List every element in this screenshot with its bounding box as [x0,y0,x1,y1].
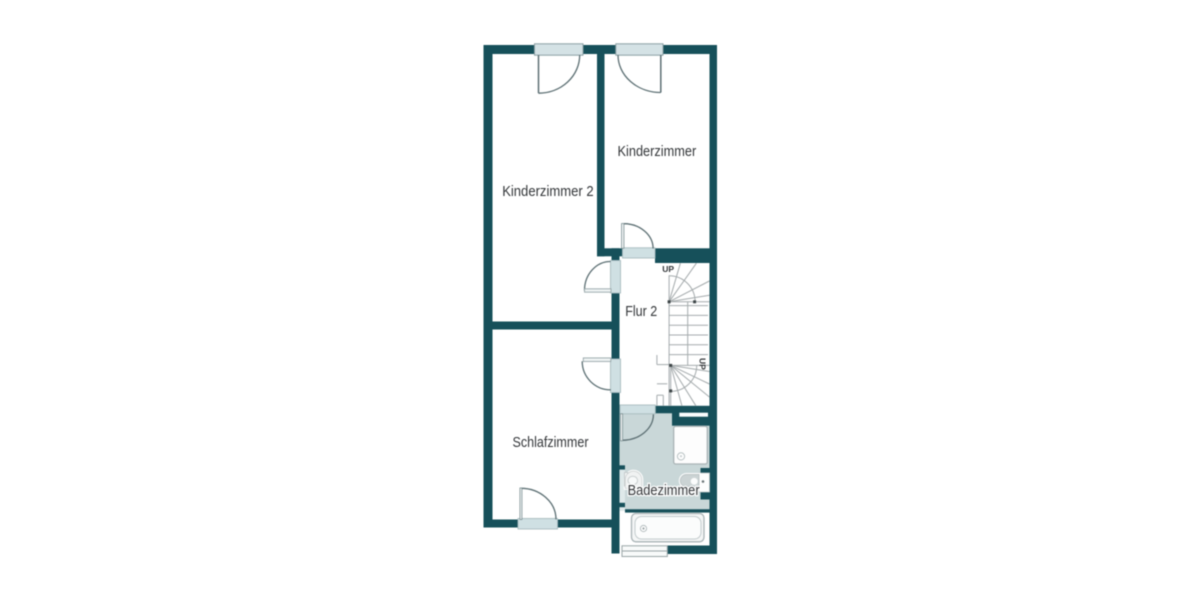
svg-text:Kinderzimmer 2: Kinderzimmer 2 [502,183,593,200]
svg-text:Badezimmer: Badezimmer [628,482,700,499]
svg-text:UP: UP [662,264,674,274]
svg-text:Schlafzimmer: Schlafzimmer [513,434,589,451]
svg-text:Kinderzimmer: Kinderzimmer [618,143,697,160]
svg-text:Flur 2: Flur 2 [625,303,657,320]
svg-text:UP: UP [697,358,707,370]
